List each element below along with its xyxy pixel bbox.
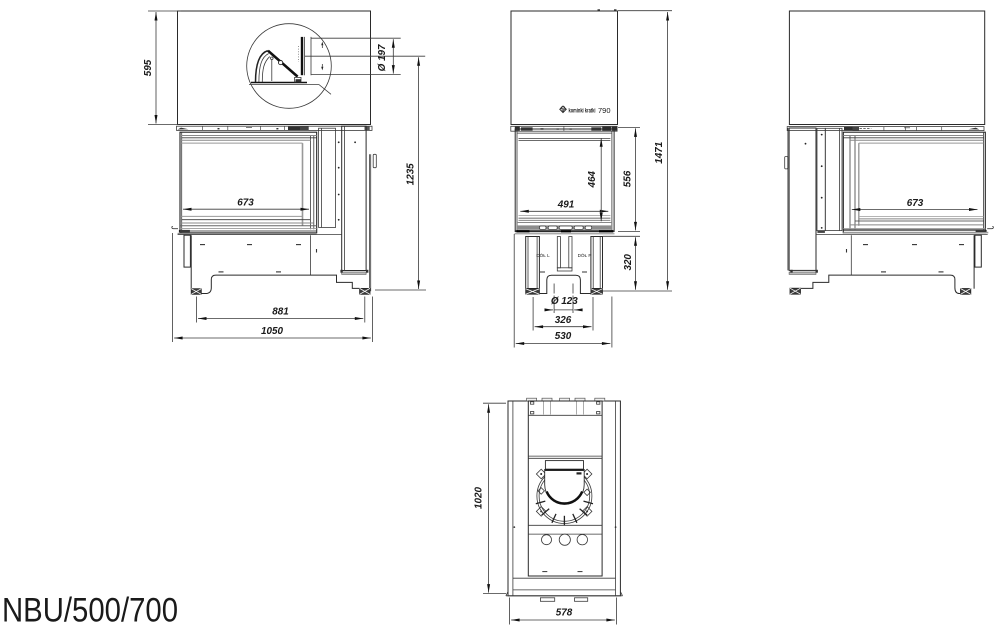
svg-text:1471: 1471 xyxy=(654,142,665,164)
svg-text:491: 491 xyxy=(557,199,574,210)
svg-text:464: 464 xyxy=(587,171,598,189)
svg-text:556: 556 xyxy=(623,170,634,187)
svg-text:1235: 1235 xyxy=(406,163,417,185)
svg-text:1050: 1050 xyxy=(261,326,283,337)
svg-text:320: 320 xyxy=(623,254,634,271)
svg-text:673: 673 xyxy=(237,198,254,209)
svg-text:530: 530 xyxy=(555,331,572,342)
svg-text:Ø 197: Ø 197 xyxy=(377,44,388,71)
svg-text:673: 673 xyxy=(907,198,924,209)
svg-text:578: 578 xyxy=(556,608,573,619)
svg-text:DÓŁ L: DÓŁ L xyxy=(536,252,550,258)
svg-text:DÓŁ P: DÓŁ P xyxy=(578,252,592,258)
svg-text:NBU/500/700: NBU/500/700 xyxy=(2,592,178,630)
svg-text:790: 790 xyxy=(598,106,611,115)
svg-text:881: 881 xyxy=(272,307,288,318)
svg-text:1020: 1020 xyxy=(474,487,485,509)
svg-text:kominki kratki: kominki kratki xyxy=(569,108,596,115)
svg-text:Ø 123: Ø 123 xyxy=(551,296,578,307)
svg-text:595: 595 xyxy=(143,59,154,76)
svg-text:326: 326 xyxy=(555,315,572,326)
